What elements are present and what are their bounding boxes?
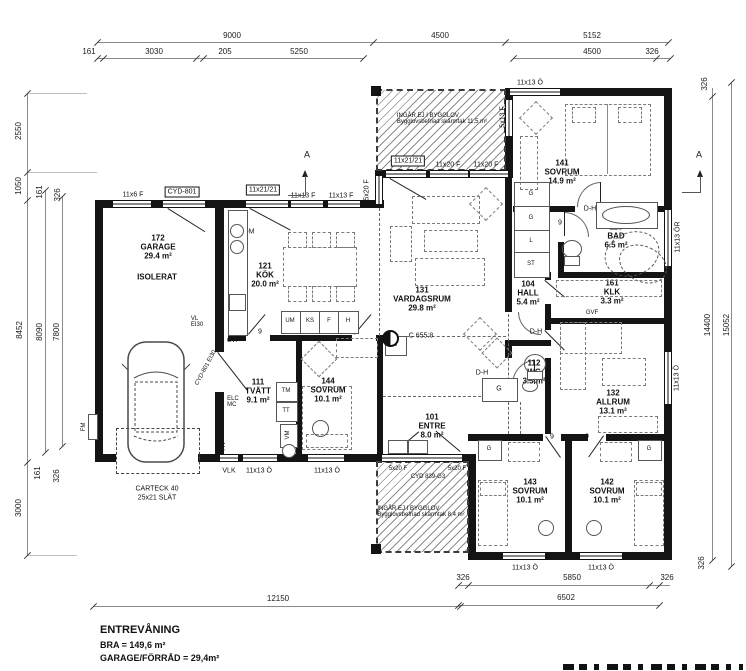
desk xyxy=(336,338,378,358)
pillow xyxy=(636,482,662,496)
pillow xyxy=(572,107,596,123)
opening-line xyxy=(520,402,521,434)
door-arc xyxy=(564,212,589,237)
section-line xyxy=(305,176,306,196)
wall xyxy=(468,552,672,560)
window-garage xyxy=(113,200,151,208)
room-label-tvatt: 111TVÄTT9.1 m² xyxy=(245,378,271,405)
fm-label: FM xyxy=(81,423,87,432)
chair xyxy=(336,232,355,248)
chair xyxy=(312,232,331,248)
shoe-bench xyxy=(388,440,408,454)
wardrobe-label: G xyxy=(647,446,652,452)
sofa-chaise xyxy=(560,322,586,390)
door-garage-top xyxy=(163,200,205,208)
opening-label: 11x13 ÖR xyxy=(675,222,682,253)
stool xyxy=(312,420,329,437)
dim-line xyxy=(27,93,28,555)
dim-label: 161 xyxy=(36,185,44,198)
stove xyxy=(229,294,246,311)
floorplan-sheet: INGÅR EJ I BYGGLOVBygglovsbefriad skärmt… xyxy=(0,0,746,671)
dim-label: 2550 xyxy=(15,122,23,140)
machine-label: TT xyxy=(282,408,289,414)
dim-label: 9000 xyxy=(223,32,241,40)
room-label-vardagsrum: 131VARDAGSRUM29.8 m² xyxy=(393,286,451,313)
stool xyxy=(586,520,602,536)
window-kok-1 xyxy=(291,200,323,208)
window-sovrum142 xyxy=(580,552,622,560)
closet-label: G xyxy=(529,191,534,197)
toilet-tank xyxy=(527,371,543,380)
reference-marker xyxy=(382,330,399,347)
door-leaf xyxy=(248,314,265,335)
garage-door-label: 25x21 SLÄT xyxy=(138,495,177,502)
dim-label: 4500 xyxy=(583,48,601,56)
basin xyxy=(602,206,650,224)
canopy-bottom-note: INGÅR EJ I BYGGLOVBygglovsbefriad skärmt… xyxy=(377,506,464,518)
car-icon xyxy=(120,340,192,464)
fv-label: F/V xyxy=(221,441,227,450)
opening-label: CYD-801 xyxy=(165,187,200,198)
window-sovrum143 xyxy=(503,552,545,560)
table xyxy=(602,358,646,386)
opening-label: 11x13 F xyxy=(329,193,354,200)
tick xyxy=(665,39,672,46)
cutoff-logo-fragment xyxy=(563,664,743,670)
room-label-hall: 104HALL5.4 m² xyxy=(516,280,539,307)
window-vardagsrum-1 xyxy=(430,170,468,178)
room-label-garage: 172GARAGE29.4 m² xyxy=(140,234,175,261)
desk xyxy=(508,442,540,462)
ext-line xyxy=(27,555,77,556)
bed-center-line xyxy=(607,104,608,174)
tick xyxy=(360,55,367,62)
armchair xyxy=(301,341,338,378)
dim-label: 326 xyxy=(53,469,61,482)
floor-title: ENTREVÅNING xyxy=(100,624,180,636)
opening-label: 11x20 F xyxy=(474,162,499,169)
dim-label: 4500 xyxy=(431,32,449,40)
gvf-label: GVF xyxy=(227,338,239,344)
toilet-tank xyxy=(564,256,580,266)
room-label-sovrum142: 142SOVRUM10.1 m² xyxy=(589,478,624,505)
dim-label: 3030 xyxy=(145,48,163,56)
opening-label: 11x13 F xyxy=(291,193,316,200)
dim-label: 7800 xyxy=(53,323,61,341)
dim-label: 3000 xyxy=(15,499,23,517)
opening-label: 11x13 Ö xyxy=(588,565,614,572)
dim-line xyxy=(458,585,670,586)
dim-label: 1050 xyxy=(15,177,23,195)
section-marker-label: A xyxy=(304,152,310,159)
dim-label: 326 xyxy=(54,188,62,201)
dim-label: 8090 xyxy=(36,323,44,341)
desk xyxy=(600,442,632,462)
ext-line xyxy=(27,172,97,173)
dim-label: 326 xyxy=(698,556,706,569)
section-line xyxy=(682,192,700,193)
fire-door-label: CYD-801 EI30 xyxy=(194,350,217,387)
entre-door-assembly xyxy=(382,454,462,462)
opening-label: 5x20 F xyxy=(364,179,371,200)
dim-line xyxy=(62,196,63,446)
closet-label: ST xyxy=(527,261,535,267)
opening-label: 5x20 F xyxy=(448,466,466,472)
wall xyxy=(561,434,588,441)
dim-line xyxy=(45,190,46,452)
dim-label: 15052 xyxy=(723,314,731,336)
opening-label: 11x13 Ö xyxy=(246,468,272,475)
wall xyxy=(215,208,224,352)
closet-label: G xyxy=(529,215,534,221)
dim-label: 326 xyxy=(660,574,673,582)
window-vardagsrum-2 xyxy=(470,170,508,178)
window-allrum xyxy=(664,352,672,404)
dim-line xyxy=(97,58,363,59)
wardrobe-label: G xyxy=(487,446,492,452)
opening-label: 11x6 F xyxy=(123,192,144,199)
reference-label: C 655:8 xyxy=(409,333,434,340)
vl-ei30-label: VLEI30 xyxy=(191,316,203,328)
room-note-isolerat: ISOLERAT xyxy=(137,273,177,282)
dim-label: 326 xyxy=(645,48,658,56)
open-plan-line xyxy=(379,208,380,336)
chair xyxy=(336,286,355,302)
sink xyxy=(522,380,538,392)
door-size: 9 xyxy=(585,434,589,441)
wall xyxy=(565,441,572,552)
appliance-label: KS xyxy=(306,318,314,324)
room-label-kok: 121KÖK20.0 m² xyxy=(251,262,279,289)
section-marker-label: A xyxy=(696,152,702,159)
opening-label: 5x13 F xyxy=(500,106,507,127)
section-line xyxy=(288,195,305,196)
opening-label: 11x21/21 xyxy=(246,185,280,196)
dining-table xyxy=(283,247,357,287)
appliance-label: H xyxy=(346,318,350,324)
dim-line xyxy=(513,58,670,59)
dim-label: 205 xyxy=(218,48,231,56)
dim-label: 161 xyxy=(82,48,95,56)
dim-label: 12150 xyxy=(267,595,289,603)
wall xyxy=(505,178,512,312)
chair xyxy=(312,286,331,302)
dim-label: 326 xyxy=(701,77,709,90)
opening-label: 11x20 F xyxy=(436,162,461,169)
dim-line xyxy=(731,82,732,566)
floor-drain xyxy=(282,444,296,458)
fire-door-leaf xyxy=(217,352,247,390)
tick xyxy=(42,449,49,456)
dim-label: 6502 xyxy=(557,594,575,602)
canopy-post xyxy=(371,86,381,96)
door-leaf xyxy=(250,208,291,230)
pillow xyxy=(306,434,348,448)
machine-label: TM xyxy=(282,388,291,394)
ext-line xyxy=(27,93,87,94)
wall xyxy=(545,318,551,330)
armchair xyxy=(519,101,553,135)
dim-label: 161 xyxy=(34,466,42,479)
room-label-allrum: 132ALLRUM13.1 m² xyxy=(596,389,630,416)
door-hinge-label: D-H xyxy=(530,329,542,336)
sink xyxy=(230,224,244,238)
dim-label: 8452 xyxy=(16,321,24,339)
door-leaf xyxy=(564,212,565,236)
dim-label: 14400 xyxy=(704,314,712,336)
tick xyxy=(656,602,663,609)
dim-line xyxy=(93,606,460,607)
dim-label: 5250 xyxy=(290,48,308,56)
garage-door-label: CARTECK 40 xyxy=(135,486,178,493)
canopy-post xyxy=(371,544,381,554)
window-kok-3 xyxy=(375,176,383,204)
dim-label: 5152 xyxy=(583,32,601,40)
chair xyxy=(288,232,307,248)
wardrobe-dashed xyxy=(520,136,538,190)
door-kok xyxy=(246,200,288,208)
tick xyxy=(667,55,674,62)
section-line xyxy=(700,176,701,193)
opening-label: CYD 839-G3 xyxy=(411,474,445,480)
opening-line xyxy=(508,402,509,434)
door-size: 8 xyxy=(547,396,551,403)
door-hinge-label: D-H xyxy=(584,206,596,213)
area-garage: GARAGE/FÖRRÅD = 29,4m² xyxy=(100,653,219,663)
opening-label: 11x13 Ö xyxy=(512,565,538,572)
pillow xyxy=(618,107,642,123)
door-size: 9 xyxy=(258,329,262,336)
opening-label: VLK xyxy=(222,468,235,475)
window-tvatt xyxy=(243,454,277,462)
appliance-label: F xyxy=(327,318,331,324)
sink xyxy=(230,240,244,254)
chair xyxy=(288,286,307,302)
door-leaf xyxy=(167,208,205,232)
room-label-entre: 101ENTRE8.0 m² xyxy=(418,413,445,440)
opening-label: 5x20 F xyxy=(389,466,407,472)
window-sovrum141 xyxy=(510,88,560,96)
door-hinge-label: D-H xyxy=(476,370,488,377)
dim-label: 326 xyxy=(456,574,469,582)
appliance-label: UM xyxy=(285,318,294,324)
sofa xyxy=(412,196,480,224)
shelf xyxy=(556,280,662,297)
area-bra: BRA = 149,6 m² xyxy=(100,640,165,650)
door-size: 9 xyxy=(558,220,562,227)
closet-label: G xyxy=(496,386,501,393)
tick xyxy=(709,557,716,564)
window-vlk xyxy=(220,454,238,462)
tick xyxy=(728,563,735,570)
opening-label: 11x13 Ö xyxy=(674,365,681,391)
gvf-label: GVF xyxy=(586,310,598,316)
coffee-table xyxy=(424,230,478,252)
door-size: 9 xyxy=(550,434,554,441)
window-sovrum144 xyxy=(308,454,344,462)
opening-label: 11x21/21 xyxy=(391,156,425,167)
window-kok-2 xyxy=(328,200,360,208)
tick xyxy=(59,443,66,450)
window-bad xyxy=(664,210,672,266)
machine-label: VM xyxy=(285,431,291,440)
meter-cabinet xyxy=(88,414,98,440)
dim-line xyxy=(712,88,713,560)
closet-label: L xyxy=(529,238,532,244)
dim-line xyxy=(97,42,668,43)
wall xyxy=(468,454,476,560)
side-table xyxy=(390,226,412,262)
opening-label: 11x13 Ö xyxy=(517,80,543,87)
door-vardagsrum xyxy=(386,170,426,178)
wall xyxy=(545,304,551,318)
shoe-bench xyxy=(408,440,428,454)
wall xyxy=(664,88,672,560)
opening-label: 11x13 Ö xyxy=(314,468,340,475)
room-label-sovrum143: 143SOVRUM10.1 m² xyxy=(512,478,547,505)
elc-label: ELCMC xyxy=(227,396,239,408)
pillow xyxy=(480,482,506,496)
stool xyxy=(538,520,554,536)
sofa xyxy=(415,258,485,286)
dim-line xyxy=(458,605,659,606)
canopy-top-note: INGÅR EJ I BYGGLOVBygglovsbefriad skärmt… xyxy=(395,112,489,126)
tv-bench xyxy=(598,416,658,433)
dim-label: 5850 xyxy=(563,574,581,582)
